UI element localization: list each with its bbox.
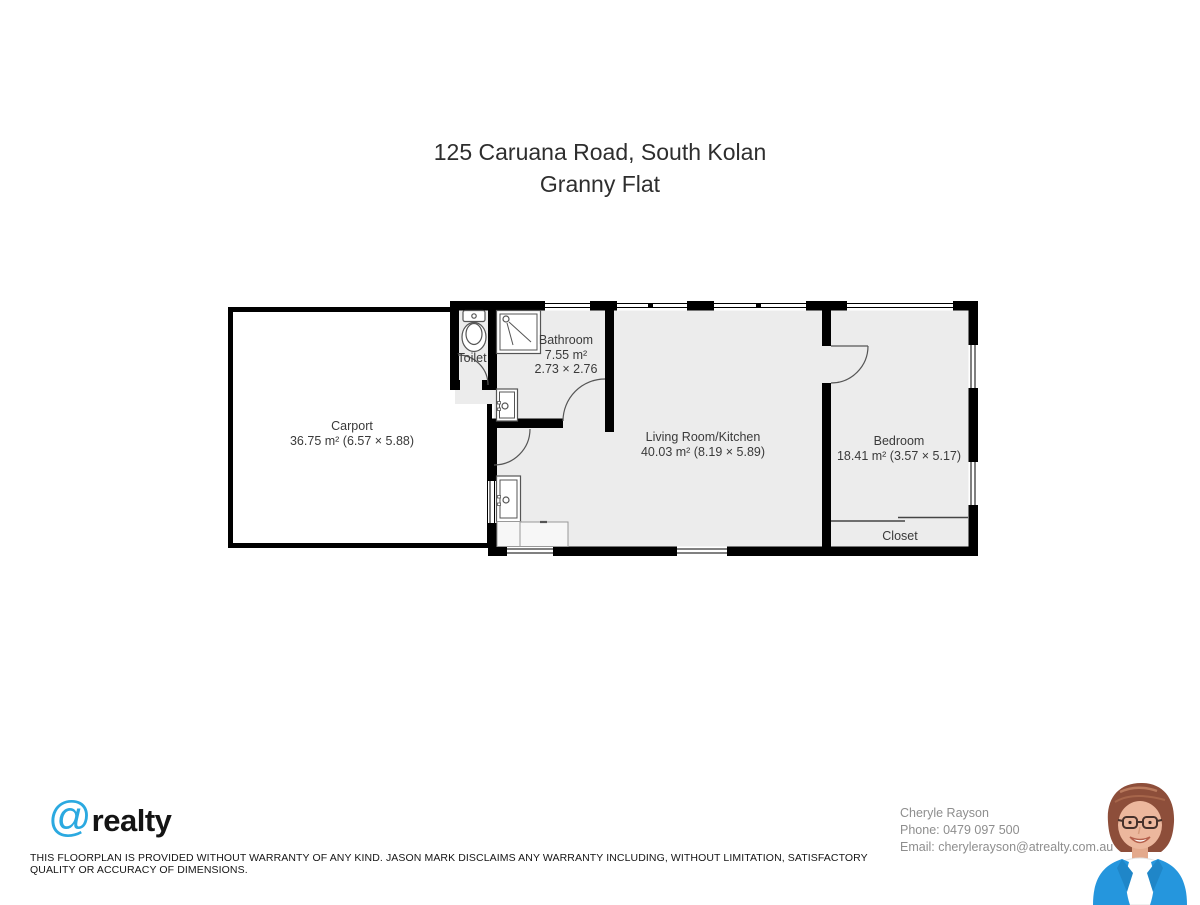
room-area: 7.55 m²	[535, 348, 598, 363]
room-label-toilet: Toilet	[457, 351, 486, 366]
room-label-bedroom: Bedroom 18.41 m² (3.57 × 5.17)	[837, 434, 961, 463]
floorplan-page: { "title": { "line1": "125 Caruana Road,…	[0, 0, 1200, 905]
floorplan-drawing	[0, 0, 1200, 905]
disclaimer-text: THIS FLOORPLAN IS PROVIDED WITHOUT WARRA…	[30, 852, 890, 876]
room-name: Bedroom	[837, 434, 961, 449]
room-name: Toilet	[457, 351, 486, 366]
realty-logo: @realty	[48, 797, 171, 839]
room-name: Closet	[882, 529, 917, 544]
kitchen-sink-icon	[497, 476, 521, 522]
logo-wordmark: realty	[92, 803, 172, 839]
vanity-sink-icon	[497, 389, 518, 421]
right-eye	[1148, 821, 1151, 824]
room-name: Carport	[290, 419, 414, 434]
room-label-carport: Carport 36.75 m² (6.57 × 5.88)	[290, 419, 414, 448]
toilet-icon	[462, 311, 486, 352]
room-name: Bathroom	[535, 333, 598, 348]
room-area: 40.03 m² (8.19 × 5.89)	[641, 445, 765, 460]
room-area: 36.75 m² (6.57 × 5.88)	[290, 434, 414, 449]
room-label-living: Living Room/Kitchen 40.03 m² (8.19 × 5.8…	[641, 430, 765, 459]
agent-photo	[1075, 778, 1200, 905]
room-label-closet: Closet	[882, 529, 917, 544]
room-name: Living Room/Kitchen	[641, 430, 765, 445]
room-dims: 2.73 × 2.76	[535, 362, 598, 377]
kitchen-counter	[497, 522, 568, 547]
left-eye	[1128, 821, 1131, 824]
logo-at-icon: @	[48, 797, 92, 837]
room-area: 18.41 m² (3.57 × 5.17)	[837, 449, 961, 464]
room-label-bathroom: Bathroom 7.55 m² 2.73 × 2.76	[535, 333, 598, 377]
